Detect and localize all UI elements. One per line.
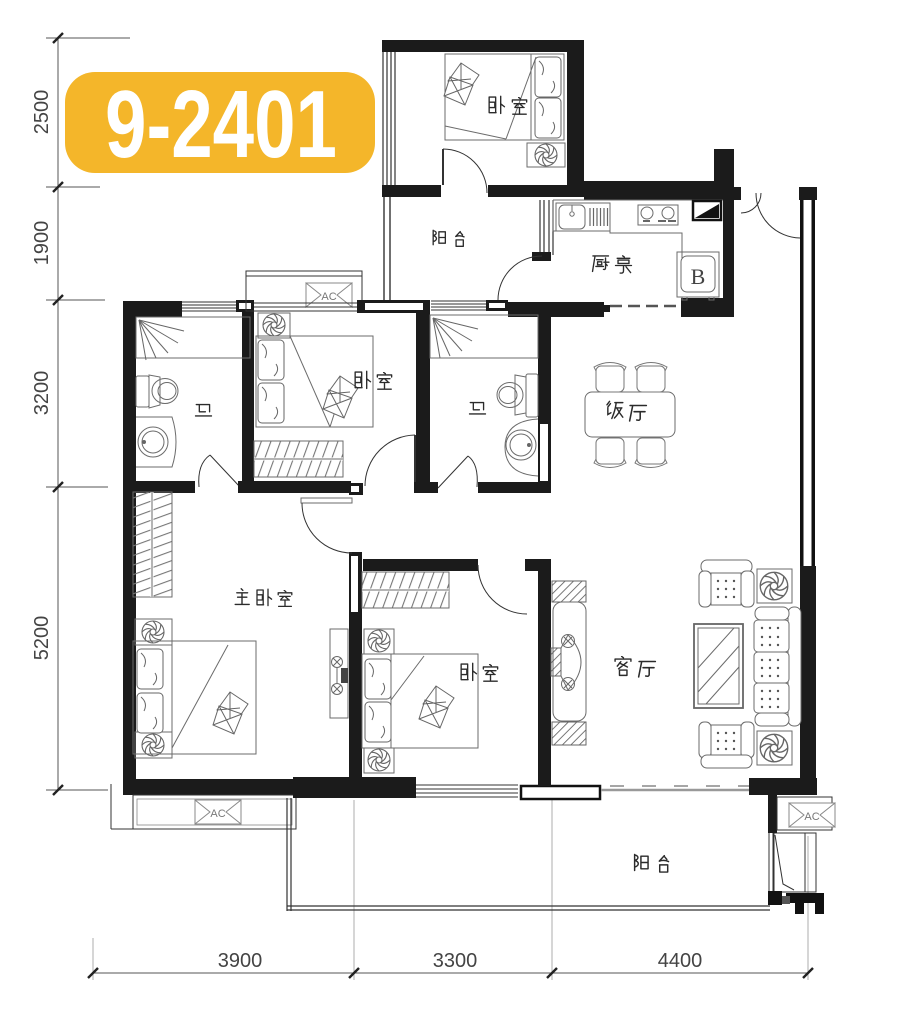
svg-text:3900: 3900 <box>218 950 263 972</box>
svg-text:4400: 4400 <box>658 950 703 972</box>
svg-text:B: B <box>691 264 706 289</box>
svg-text:1900: 1900 <box>31 221 53 266</box>
svg-text:9-2401: 9-2401 <box>105 71 337 178</box>
svg-text:3200: 3200 <box>31 371 53 416</box>
svg-text:3300: 3300 <box>433 950 478 972</box>
svg-text:2500: 2500 <box>31 90 53 135</box>
svg-text:5200: 5200 <box>31 616 53 661</box>
